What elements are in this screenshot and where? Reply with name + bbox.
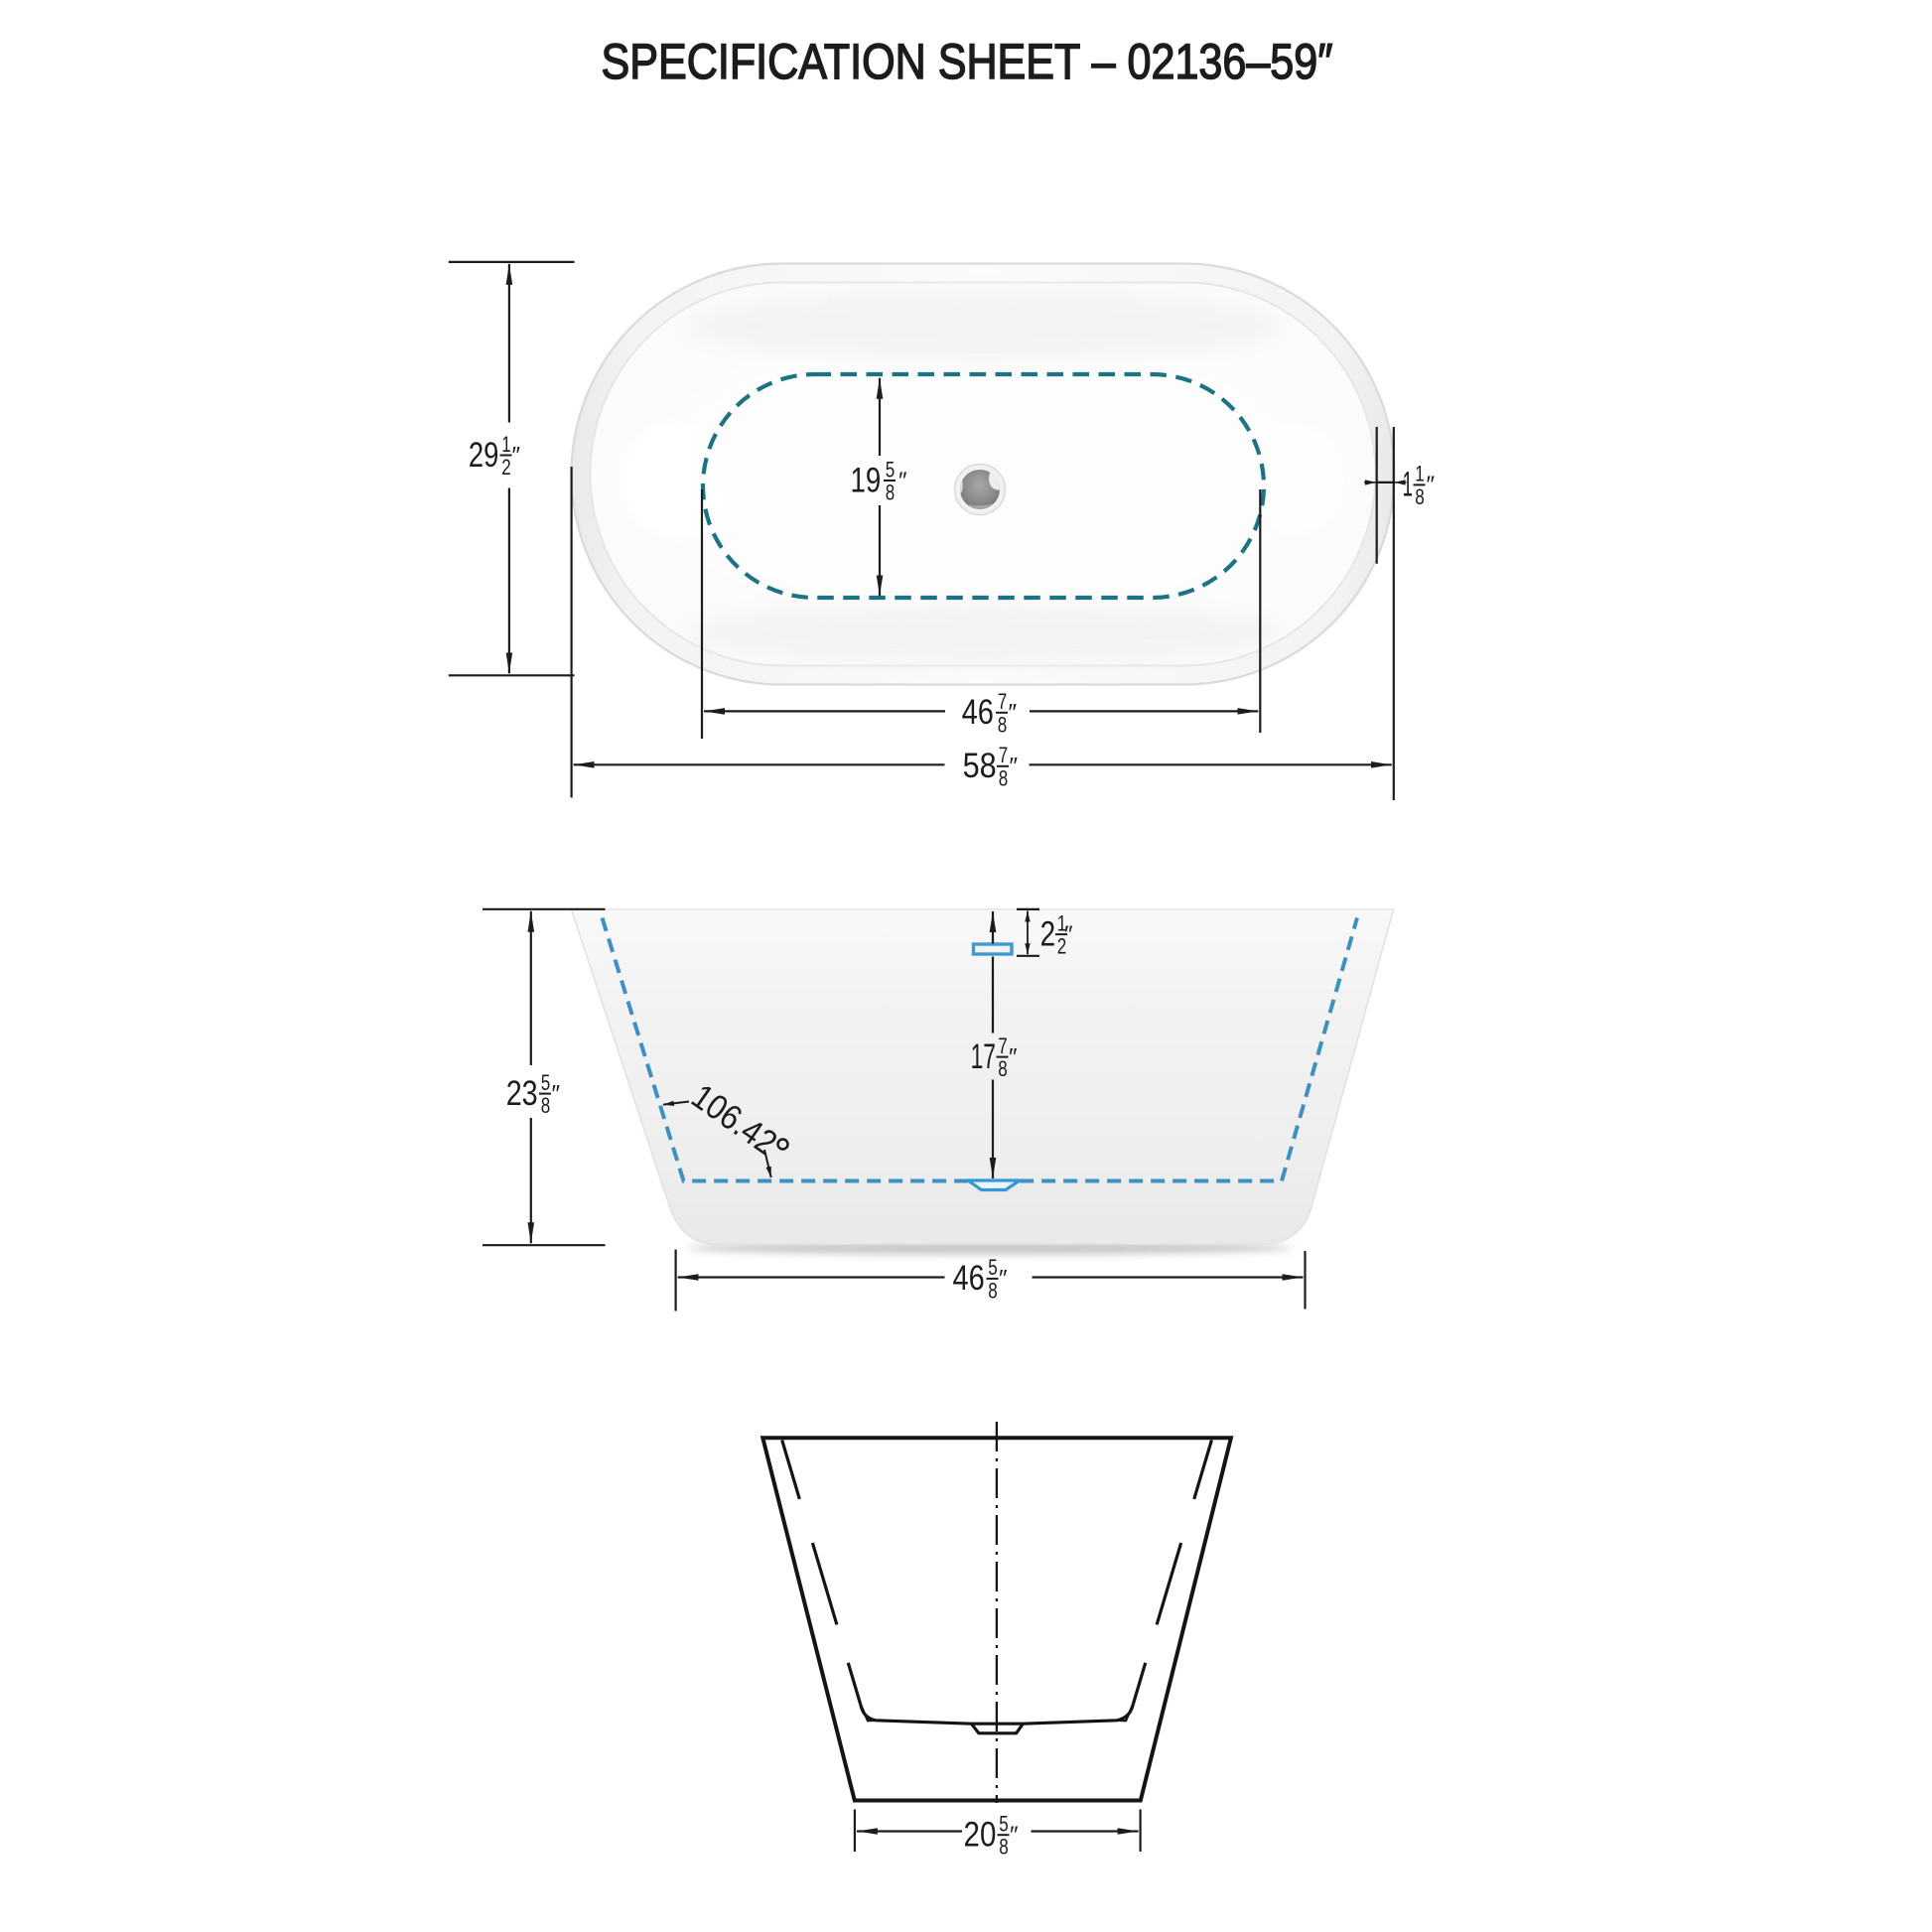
svg-text:″: ″ [1010,754,1019,780]
svg-text:″: ″ [1009,700,1018,727]
svg-text:1: 1 [501,432,511,457]
svg-text:8: 8 [999,1835,1009,1860]
svg-text:17: 17 [971,1037,996,1076]
svg-text:7: 7 [999,743,1009,767]
svg-text:46: 46 [962,693,994,732]
svg-text:1: 1 [1403,466,1414,504]
svg-text:″: ″ [999,1266,1008,1293]
svg-text:8: 8 [988,1278,998,1303]
svg-text:SPECIFICATION SHEET – 02136–59: SPECIFICATION SHEET – 02136–59″ [602,34,1333,89]
svg-text:5: 5 [999,1812,1009,1837]
svg-text:8: 8 [1415,484,1425,509]
svg-text:8: 8 [998,1056,1008,1081]
svg-text:″: ″ [898,468,907,494]
svg-text:7: 7 [998,1034,1008,1058]
svg-text:″: ″ [1064,921,1073,948]
svg-text:7: 7 [998,689,1008,714]
svg-text:5: 5 [541,1070,551,1095]
svg-text:″: ″ [1010,1822,1019,1849]
svg-text:″: ″ [552,1080,561,1107]
svg-text:19: 19 [851,461,882,499]
svg-text:8: 8 [886,481,896,505]
svg-text:8: 8 [999,765,1009,790]
svg-text:8: 8 [541,1093,551,1118]
svg-text:″: ″ [512,442,521,469]
svg-text:29: 29 [469,436,499,475]
svg-text:20: 20 [964,1816,997,1855]
svg-text:58: 58 [963,747,997,785]
svg-text:″: ″ [1009,1043,1018,1070]
svg-text:46: 46 [953,1259,985,1298]
svg-text:5: 5 [886,457,896,482]
svg-text:8: 8 [998,712,1008,737]
svg-text:1: 1 [1415,462,1425,486]
svg-text:23: 23 [506,1074,538,1113]
svg-text:2: 2 [501,455,511,480]
svg-text:2: 2 [1040,914,1056,953]
svg-text:″: ″ [1427,472,1436,498]
svg-text:5: 5 [988,1255,998,1280]
